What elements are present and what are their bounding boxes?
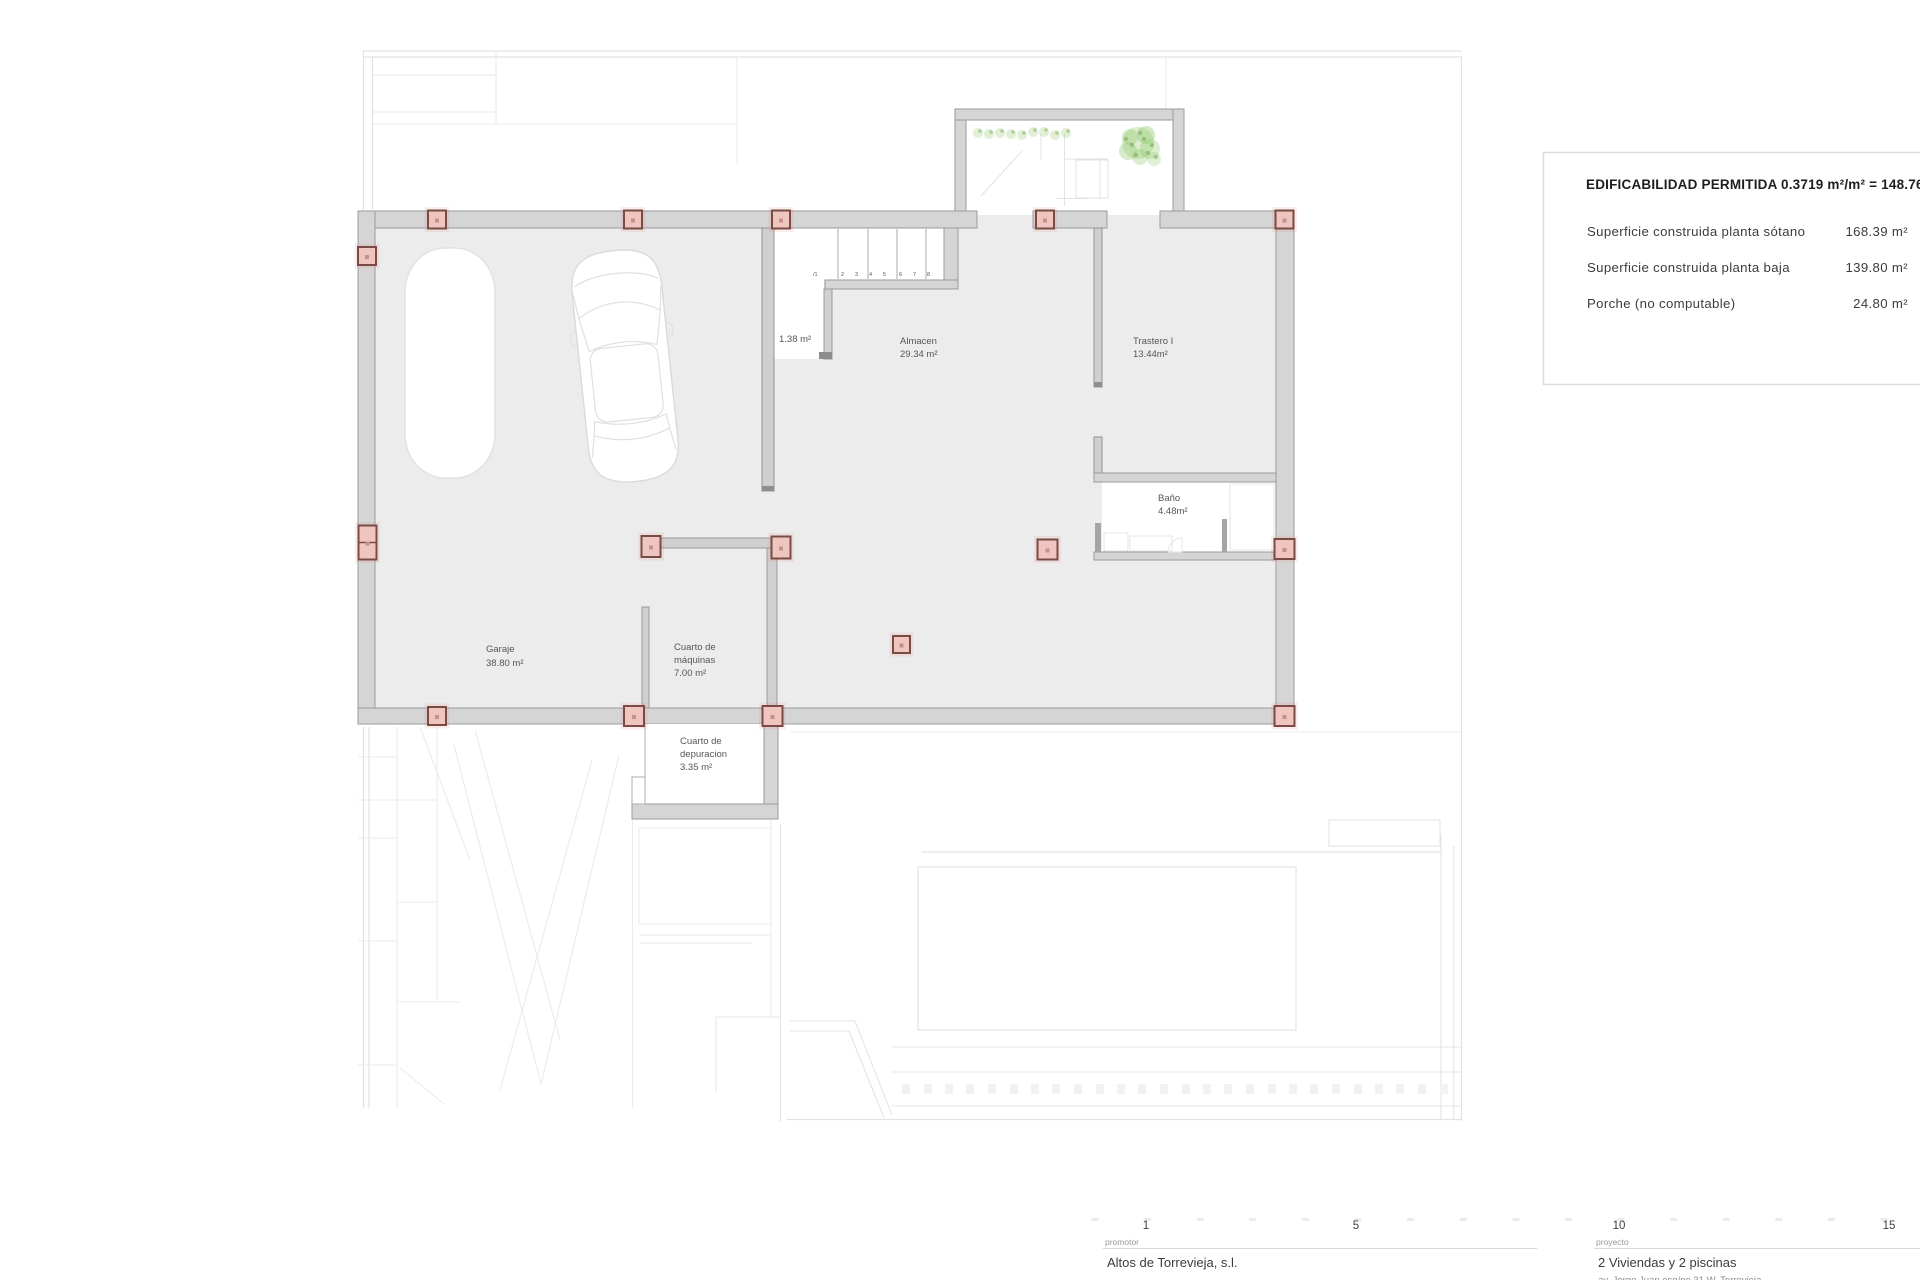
svg-text:6: 6: [899, 272, 902, 278]
svg-text:Superficie construida planta b: Superficie construida planta baja: [1587, 260, 1790, 275]
svg-text:5: 5: [1353, 1220, 1359, 1232]
svg-text:24.80 m²: 24.80 m²: [1853, 296, 1908, 311]
svg-text:Cuarto de: Cuarto de: [680, 736, 722, 747]
svg-text:139.80 m²: 139.80 m²: [1845, 260, 1908, 275]
svg-text:13.44m²: 13.44m²: [1133, 349, 1168, 360]
svg-text:Almacen: Almacen: [900, 336, 937, 347]
svg-text:2: 2: [841, 272, 844, 278]
svg-text:promotor: promotor: [1105, 1237, 1139, 1247]
svg-text:proyecto: proyecto: [1596, 1237, 1629, 1247]
svg-text:168.39 m²: 168.39 m²: [1845, 224, 1908, 239]
svg-text:1: 1: [1143, 1220, 1149, 1232]
svg-text:Trastero I: Trastero I: [1133, 336, 1173, 347]
svg-text:máquinas: máquinas: [674, 655, 715, 666]
svg-text:29.34 m²: 29.34 m²: [900, 349, 938, 360]
svg-text:4.48m²: 4.48m²: [1158, 506, 1188, 517]
svg-text:3.35 m²: 3.35 m²: [680, 762, 712, 773]
svg-text:Baño: Baño: [1158, 493, 1180, 504]
svg-text:Superficie construida planta s: Superficie construida planta sótano: [1587, 224, 1805, 239]
svg-text:7: 7: [913, 272, 916, 278]
svg-text:3: 3: [855, 272, 858, 278]
svg-text:38.80 m²: 38.80 m²: [486, 658, 524, 669]
svg-text:5: 5: [883, 272, 886, 278]
svg-text:Porche (no computable): Porche (no computable): [1587, 296, 1735, 311]
svg-text:depuracion: depuracion: [680, 749, 727, 760]
svg-text:av. Jorge Juan esq/no 31 W, To: av. Jorge Juan esq/no 31 W, Torrevieja: [1598, 1275, 1762, 1280]
svg-text:Altos de Torrevieja, s.l.: Altos de Torrevieja, s.l.: [1107, 1255, 1238, 1270]
svg-text:EDIFICABILIDAD PERMITIDA 0.371: EDIFICABILIDAD PERMITIDA 0.3719 m²/m² = …: [1586, 177, 1920, 192]
svg-text:7.00 m²: 7.00 m²: [674, 668, 706, 679]
svg-text:/1: /1: [813, 272, 818, 278]
svg-text:Garaje: Garaje: [486, 644, 515, 655]
svg-text:8: 8: [927, 272, 930, 278]
svg-text:15: 15: [1883, 1220, 1896, 1232]
svg-text:1.38 m²: 1.38 m²: [779, 334, 811, 345]
svg-text:Cuarto de: Cuarto de: [674, 642, 716, 653]
svg-text:10: 10: [1613, 1220, 1626, 1232]
svg-text:2 Viviendas y 2 piscinas: 2 Viviendas y 2 piscinas: [1598, 1255, 1737, 1270]
svg-text:4: 4: [869, 272, 872, 278]
